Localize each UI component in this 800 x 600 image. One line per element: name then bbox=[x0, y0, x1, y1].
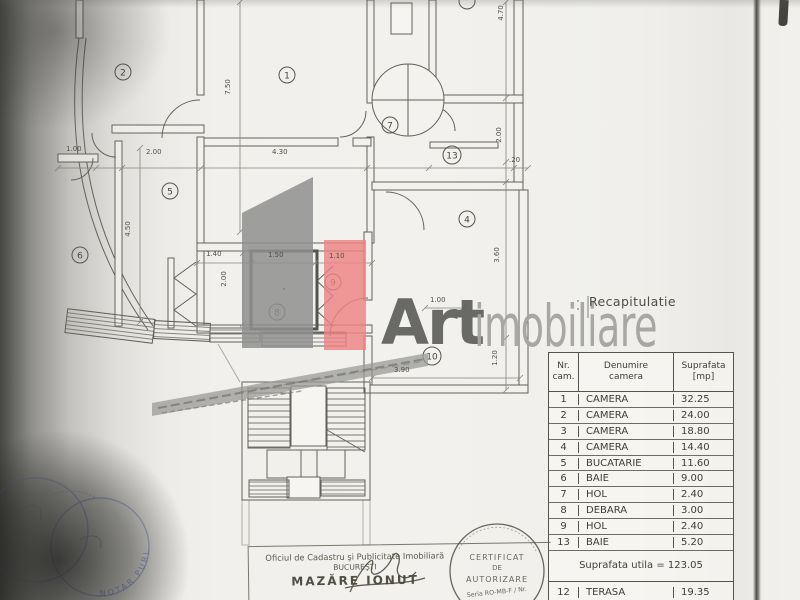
cell-nr: 4 bbox=[549, 442, 579, 453]
cell-area: 3.00 bbox=[674, 505, 733, 516]
cell-nr: 8 bbox=[549, 505, 579, 516]
table-row: 4CAMERA14.40 bbox=[549, 440, 733, 456]
dimension-label: 1.00 bbox=[66, 145, 82, 153]
cell-name: CAMERA bbox=[579, 442, 674, 453]
table-header-suprafata: Suprafata [mp] bbox=[674, 353, 733, 391]
room-label: 2 bbox=[120, 69, 126, 79]
table-row: 13BAIE5.20 bbox=[549, 535, 733, 551]
cell-name: BAIE bbox=[579, 473, 674, 484]
room-label: 4 bbox=[464, 216, 470, 226]
dimension-label: 1.00 bbox=[430, 296, 446, 304]
cell-nr: 2 bbox=[549, 410, 579, 421]
page-edge-line bbox=[753, 0, 761, 600]
table-row: 1CAMERA32.25 bbox=[549, 392, 733, 408]
dimension-label: 1.50 bbox=[268, 251, 284, 259]
table-row: 2CAMERA24.00 bbox=[549, 408, 733, 424]
office-stamp-line2: BUCUREŞTI bbox=[249, 561, 461, 573]
cell-nr: 13 bbox=[549, 537, 579, 548]
cell-nr: 9 bbox=[549, 521, 579, 532]
stairwell bbox=[218, 344, 370, 500]
cadastre-office-stamp: Oficiul de Cadastru şi Publicitate Imobi… bbox=[248, 542, 552, 600]
dimension-label: 1.40 bbox=[206, 250, 222, 258]
scanned-floor-plan-document: 2 1 7 13 5 6 4 8 9 10 A bbox=[0, 0, 800, 600]
room-label: 5 bbox=[167, 188, 173, 198]
room-label: 7 bbox=[387, 122, 393, 132]
table-row: 5BUCATARIE11.60 bbox=[549, 456, 733, 472]
cell-name: CAMERA bbox=[579, 394, 674, 405]
table-row: 7HOL2.40 bbox=[549, 487, 733, 503]
cell-name: TERASA bbox=[579, 587, 674, 598]
table-row: 9HOL2.40 bbox=[549, 519, 733, 535]
pinwheel-door bbox=[372, 64, 444, 136]
recap-table: Nr. cam. Denumire camera Suprafata [mp] … bbox=[548, 352, 734, 600]
dimension-label: 2.00 bbox=[220, 268, 228, 290]
cell-area: 9.00 bbox=[674, 473, 733, 484]
cell-area: 19.35 bbox=[674, 587, 733, 598]
cell-nr: 6 bbox=[549, 473, 579, 484]
table-row: 6BAIE9.00 bbox=[549, 471, 733, 487]
dimension-label: 7.50 bbox=[224, 76, 232, 98]
dimension-label: 1.10 bbox=[329, 252, 345, 260]
room-label: 6 bbox=[77, 252, 83, 262]
cell-nr: 7 bbox=[549, 489, 579, 500]
cell-nr: 3 bbox=[549, 426, 579, 437]
dimension-label: 4.30 bbox=[272, 148, 288, 156]
cell-name: CAMERA bbox=[579, 426, 674, 437]
cell-area: 2.40 bbox=[674, 521, 733, 532]
cell-area: 18.80 bbox=[674, 426, 733, 437]
dimension-label: 2.00 bbox=[146, 148, 162, 156]
cell-area: 14.40 bbox=[674, 442, 733, 453]
cell-nr: 12 bbox=[549, 587, 579, 598]
cell-area: 11.60 bbox=[674, 458, 733, 469]
dimension-label: 4.70 bbox=[497, 2, 505, 24]
logo-building-shape bbox=[242, 177, 313, 348]
cell-name: DEBARA bbox=[579, 505, 674, 516]
cell-name: HOL bbox=[579, 489, 674, 500]
table-header-row: Nr. cam. Denumire camera Suprafata [mp] bbox=[549, 353, 733, 392]
cell-name: HOL bbox=[579, 521, 674, 532]
cell-area: 5.20 bbox=[674, 537, 733, 548]
room-label: 1 bbox=[284, 72, 290, 82]
cell-area: 32.25 bbox=[674, 394, 733, 405]
table-header-denumire: Denumire camera bbox=[579, 353, 674, 391]
scan-corner-mark bbox=[778, 0, 788, 26]
dimension-label: 2.00 bbox=[495, 124, 503, 146]
cell-nr: 5 bbox=[549, 458, 579, 469]
office-stamp-name: MAZĂRE IONUT bbox=[249, 572, 461, 589]
room-label: 13 bbox=[446, 152, 457, 162]
dimension-label: 3.60 bbox=[493, 244, 501, 266]
cell-nr: 1 bbox=[549, 394, 579, 405]
dimension-label: 1.20 bbox=[491, 347, 499, 369]
cell-area: 24.00 bbox=[674, 410, 733, 421]
table-row: 8DEBARA3.00 bbox=[549, 503, 733, 519]
cell-name: CAMERA bbox=[579, 410, 674, 421]
dimension-label: 4.50 bbox=[124, 218, 132, 240]
cell-name: BAIE bbox=[579, 537, 674, 548]
table-header-nr: Nr. cam. bbox=[549, 353, 579, 391]
recap-title: Recapitulatie bbox=[589, 294, 676, 309]
dimension-label: 3.90 bbox=[394, 366, 410, 374]
table-row: 3CAMERA18.80 bbox=[549, 424, 733, 440]
dimension-label: .20 bbox=[509, 156, 520, 164]
cell-name: BUCATARIE bbox=[579, 458, 674, 469]
table-row-terasa: 12TERASA19.35 bbox=[549, 582, 733, 600]
total-usable-area: Suprafata utila = 123.05 bbox=[549, 551, 733, 582]
cell-area: 2.40 bbox=[674, 489, 733, 500]
